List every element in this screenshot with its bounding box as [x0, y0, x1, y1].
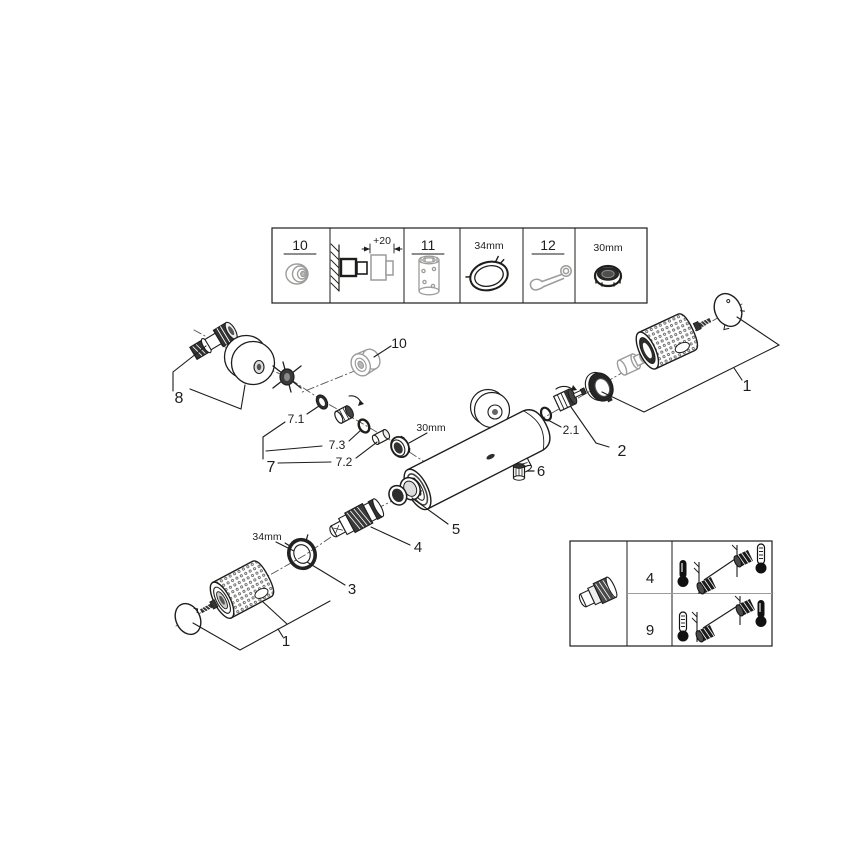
mixer-body	[399, 390, 561, 524]
handle-grip-bottom-icon	[206, 558, 278, 621]
part-2-group: 2.1 2	[539, 383, 627, 460]
part-7-bracket	[263, 406, 377, 463]
part-10-label: 10	[391, 335, 407, 351]
part-2-label: 2	[618, 443, 627, 460]
handle-oval-cap-icon	[709, 288, 748, 330]
top-parts-box: 10	[272, 228, 647, 303]
part-5-label: 5	[452, 521, 460, 538]
top-part11-label: 11	[421, 237, 436, 253]
part-1-right-group: 1	[581, 288, 779, 412]
cover-cap-icon	[347, 345, 383, 379]
part-8-label: 8	[175, 390, 184, 407]
part-4-label: 4	[414, 539, 422, 556]
valve-rotate-arrow-head	[571, 385, 577, 391]
top-part12-label: 12	[540, 237, 556, 253]
union-nut-icon	[388, 434, 413, 461]
spare-parts-diagram-page: 10	[0, 0, 868, 868]
union-sleeve-icon	[371, 429, 391, 446]
part-7-3-label: 7.3	[329, 438, 346, 452]
thermostat-cartridge-icon	[326, 497, 386, 543]
part-1-bottom-group: 1	[170, 558, 330, 650]
handle-cap-ring-icon	[581, 367, 619, 408]
thermometer-scale-icon	[678, 612, 689, 642]
thermometer-scale-icon	[756, 544, 767, 574]
escutcheon-icon	[225, 336, 275, 385]
union-nut-size-label: 30mm	[416, 422, 445, 434]
part-10-group: 10	[347, 335, 407, 379]
part-1-bottom-label: 1	[282, 633, 290, 650]
plug-screw-icon	[514, 464, 525, 481]
part-7-label: 7	[267, 459, 276, 476]
handle-oval-cap-bottom-icon	[170, 599, 206, 639]
top-nut-size-label: 30mm	[593, 242, 622, 254]
part-3-label: 3	[348, 581, 356, 598]
part-7-2-label: 7.2	[336, 455, 353, 469]
top-part10-label: 10	[292, 237, 308, 253]
diagram-svg: 10	[0, 0, 868, 868]
part-4-group: 4	[326, 497, 422, 556]
calibration-row-4-label: 4	[646, 570, 654, 587]
ring-nut-size-label: 34mm	[252, 531, 281, 543]
top-ring-size-label: 34mm	[474, 240, 503, 252]
part-1-right-label: 1	[743, 378, 752, 395]
crossed-out-part-icon	[273, 362, 301, 392]
part-6-label: 6	[537, 463, 545, 480]
part-8-group: 8	[173, 320, 275, 409]
handle-screw-icon	[693, 316, 712, 330]
calibration-box: 4	[570, 541, 772, 646]
part-2-1-label: 2.1	[563, 423, 580, 437]
cap-nut-icon	[595, 266, 621, 286]
union-insert-icon	[333, 405, 355, 425]
rotate-arrow-head	[358, 400, 364, 406]
handle-screw-bottom-icon	[199, 600, 218, 615]
extension-dimension-label: +20	[373, 235, 391, 247]
calibration-row-9-label: 9	[646, 622, 654, 639]
part-7-1-label: 7.1	[288, 412, 305, 426]
